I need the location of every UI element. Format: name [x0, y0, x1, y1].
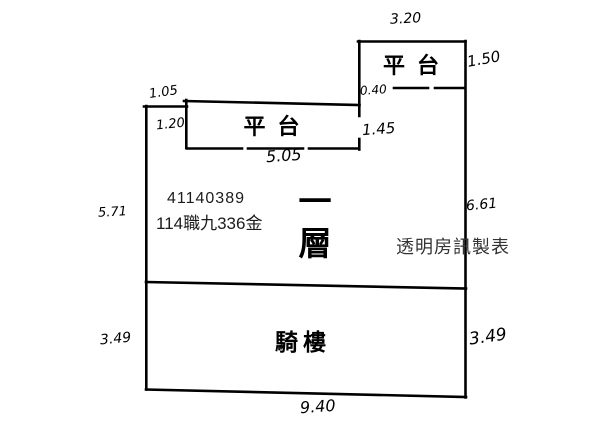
platform-left-label: 平台 — [186, 109, 359, 141]
dimension-floor-left-height: 5.71 — [98, 204, 128, 220]
dimension-floor-right-height: 6.61 — [465, 196, 497, 215]
arcade-label: 騎樓 — [275, 323, 331, 357]
platform-top-label: 平台 — [358, 48, 466, 80]
dimension-platform-left-right-height: 1.45 — [361, 119, 396, 139]
case-reference-text: 114職九336金 — [156, 209, 262, 234]
dimension-arcade-left-height: 3.49 — [99, 330, 131, 349]
dimension-platform-left-width: 5.05 — [265, 145, 302, 166]
dimension-platform-top-width: 3.20 — [390, 10, 422, 28]
arcade-divider — [146, 282, 466, 289]
case-number-text: 41140389 — [167, 190, 245, 208]
wall-bottom — [146, 390, 466, 398]
watermark-text: 透明房訊製表 — [396, 233, 510, 259]
floor-plan-canvas: 平台 平台 一層 騎樓 41140389 114職九336金 透明房訊製表 3.… — [0, 0, 612, 447]
dimension-platform-top-offset: 0.40 — [360, 82, 388, 98]
platform-left-top-edge — [184, 101, 360, 105]
dimension-platform-left-left-height: 1.20 — [155, 116, 185, 134]
dimension-bottom-width: 9.40 — [299, 396, 336, 417]
first-floor-label: 一層 — [288, 184, 336, 268]
